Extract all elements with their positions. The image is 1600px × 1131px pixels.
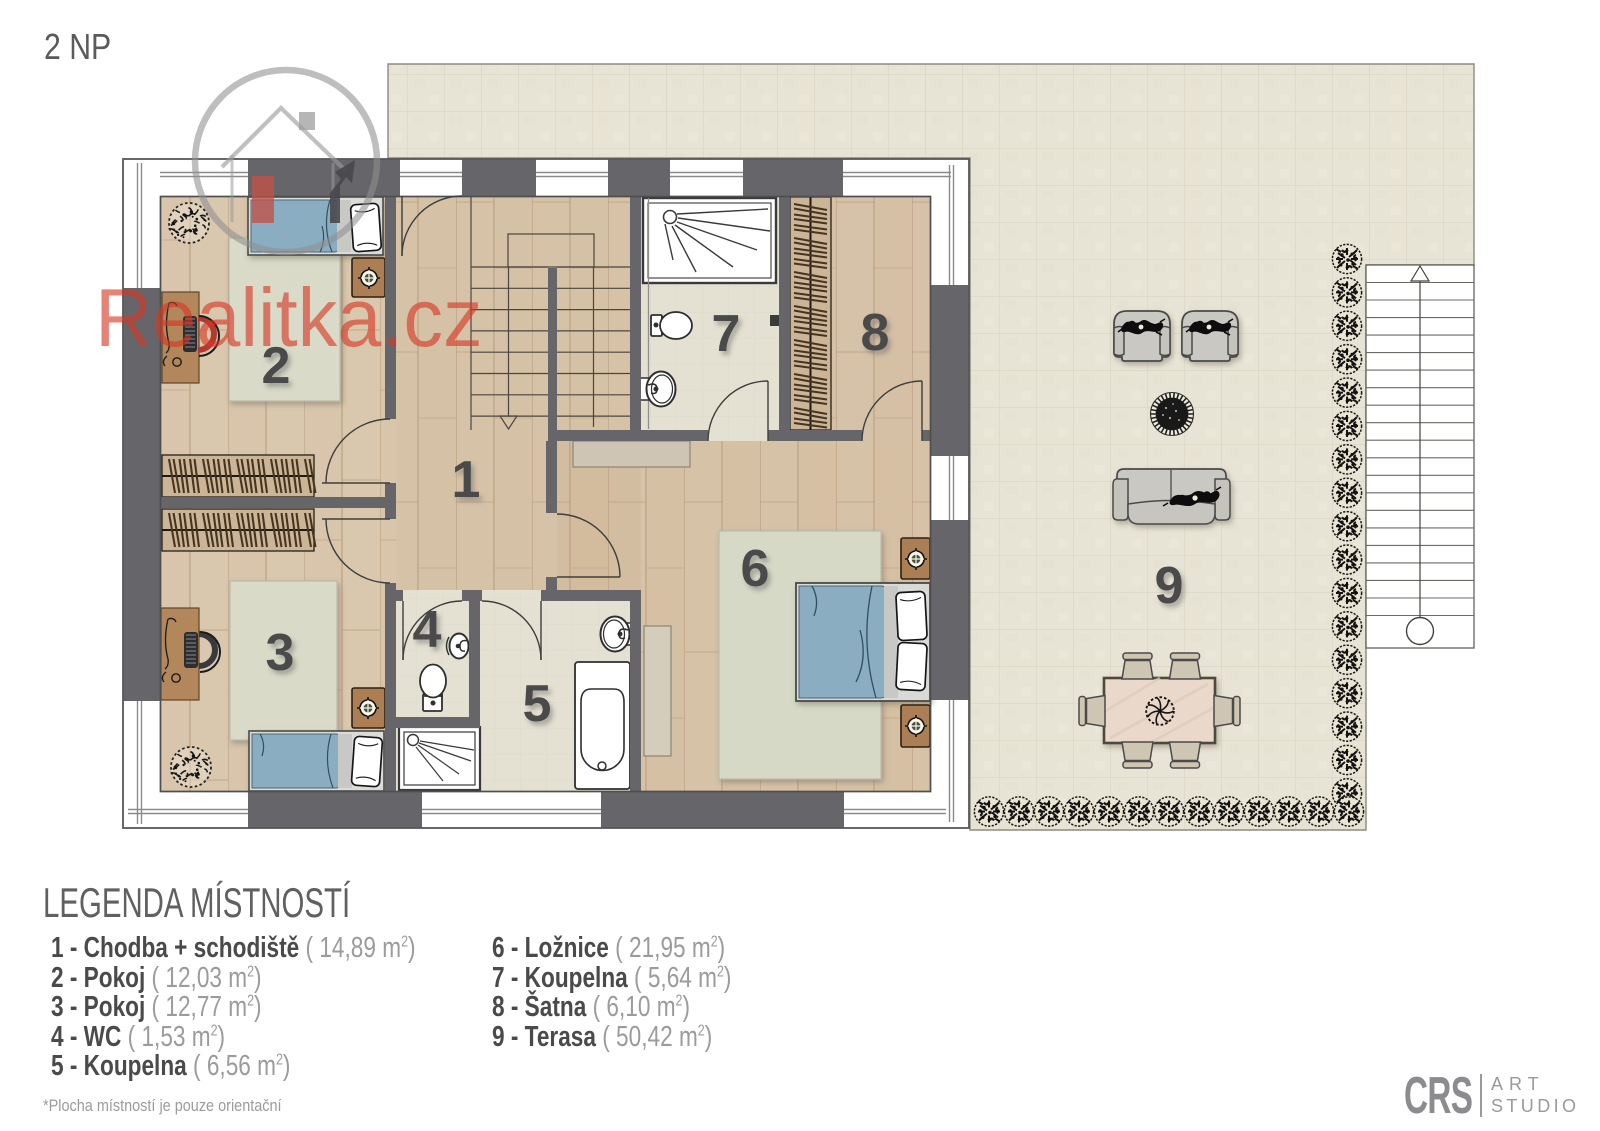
svg-text:Realitka.cz: Realitka.cz (95, 272, 483, 364)
svg-text:8: 8 (861, 304, 890, 362)
svg-text:1: 1 (452, 451, 481, 509)
svg-text:7: 7 (712, 305, 741, 363)
svg-text:5: 5 (523, 675, 552, 733)
svg-text:6: 6 (741, 540, 770, 598)
svg-text:4: 4 (413, 601, 442, 659)
svg-text:3: 3 (266, 624, 295, 682)
svg-text:9: 9 (1155, 557, 1184, 615)
